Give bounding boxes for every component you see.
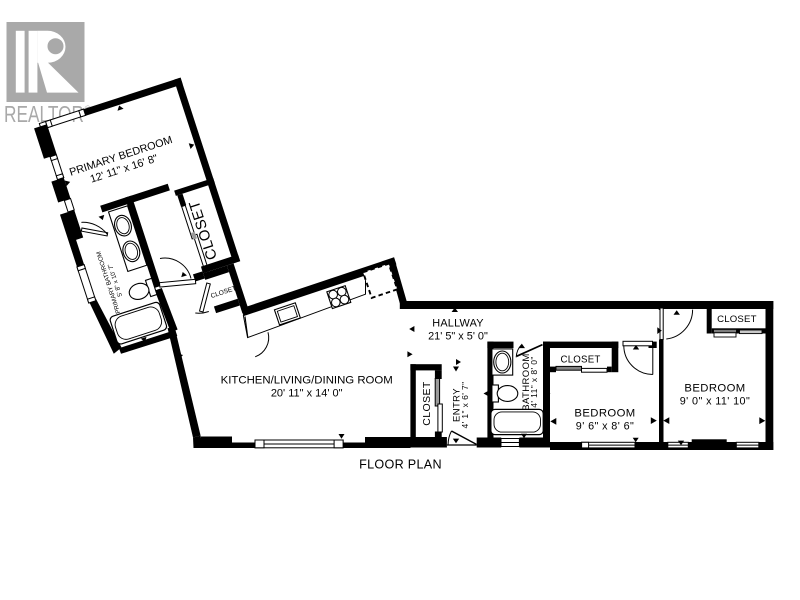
- svg-text:9' 6" x 8' 6": 9' 6" x 8' 6": [576, 421, 634, 433]
- svg-text:20' 11" x 14' 0": 20' 11" x 14' 0": [271, 388, 343, 400]
- svg-text:BEDROOM: BEDROOM: [574, 408, 635, 420]
- svg-text:BEDROOM: BEDROOM: [684, 383, 745, 395]
- svg-text:CLOSET: CLOSET: [421, 381, 433, 426]
- svg-text:CLOSET: CLOSET: [561, 355, 601, 366]
- svg-text:HALLWAY: HALLWAY: [432, 318, 484, 330]
- svg-text:21' 5" x 5' 0": 21' 5" x 5' 0": [428, 331, 488, 343]
- svg-text:FLOOR PLAN: FLOOR PLAN: [359, 458, 442, 472]
- svg-text:4' 11" x 8' 0": 4' 11" x 8' 0": [529, 356, 539, 408]
- svg-text:CLOSET: CLOSET: [717, 314, 757, 325]
- svg-text:9' 0" x 11' 10": 9' 0" x 11' 10": [680, 396, 750, 408]
- svg-text:KITCHEN/LIVING/DINING ROOM: KITCHEN/LIVING/DINING ROOM: [221, 375, 393, 387]
- svg-text:4' 1" x 6' 7": 4' 1" x 6' 7": [460, 381, 470, 428]
